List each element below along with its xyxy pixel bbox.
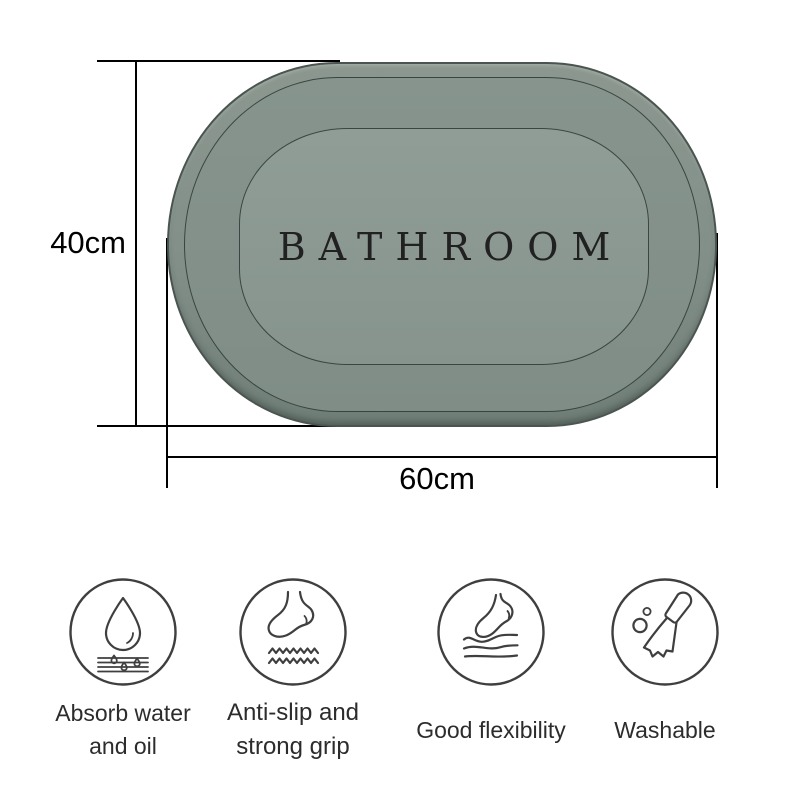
water-drop-layers-icon [68, 577, 178, 687]
product-image: 40cm 60cm BATHROOM Absorb water and oil [0, 0, 800, 800]
dim-line-bottom-tangent [97, 425, 340, 427]
feature-label-flexibility: Good flexibility [416, 693, 566, 767]
feature-label-washable: Washable [614, 693, 715, 767]
dim-tick-left [166, 238, 168, 488]
bath-mat: BATHROOM [167, 62, 717, 427]
foot-zigzag-icon [238, 577, 348, 687]
foot-flex-icon [436, 577, 546, 687]
feature-anti-slip: Anti-slip and strong grip [203, 577, 383, 767]
feature-absorb-water: Absorb water and oil [33, 577, 213, 767]
width-dimension-label: 60cm [357, 463, 517, 494]
dim-line-height-extent [135, 60, 137, 427]
feature-washable: Washable [575, 577, 755, 767]
feature-label-text: Anti-slip and strong grip [217, 696, 369, 764]
dim-line-top-tangent [97, 60, 340, 62]
feature-label-absorb: Absorb water and oil [48, 693, 198, 767]
cleaning-brush-icon [610, 577, 720, 687]
feature-label-anti-slip: Anti-slip and strong grip [217, 693, 369, 767]
dim-tick-right [716, 233, 718, 488]
dim-line-width [166, 456, 718, 458]
mat-inner-panel: BATHROOM [239, 128, 649, 365]
feature-flexibility: Good flexibility [401, 577, 581, 767]
height-dimension-label: 40cm [40, 227, 126, 258]
mat-text: BATHROOM [265, 225, 624, 269]
feature-label-text: Absorb water and oil [48, 697, 198, 762]
feature-label-text: Washable [614, 714, 715, 747]
feature-label-text: Good flexibility [416, 714, 566, 747]
